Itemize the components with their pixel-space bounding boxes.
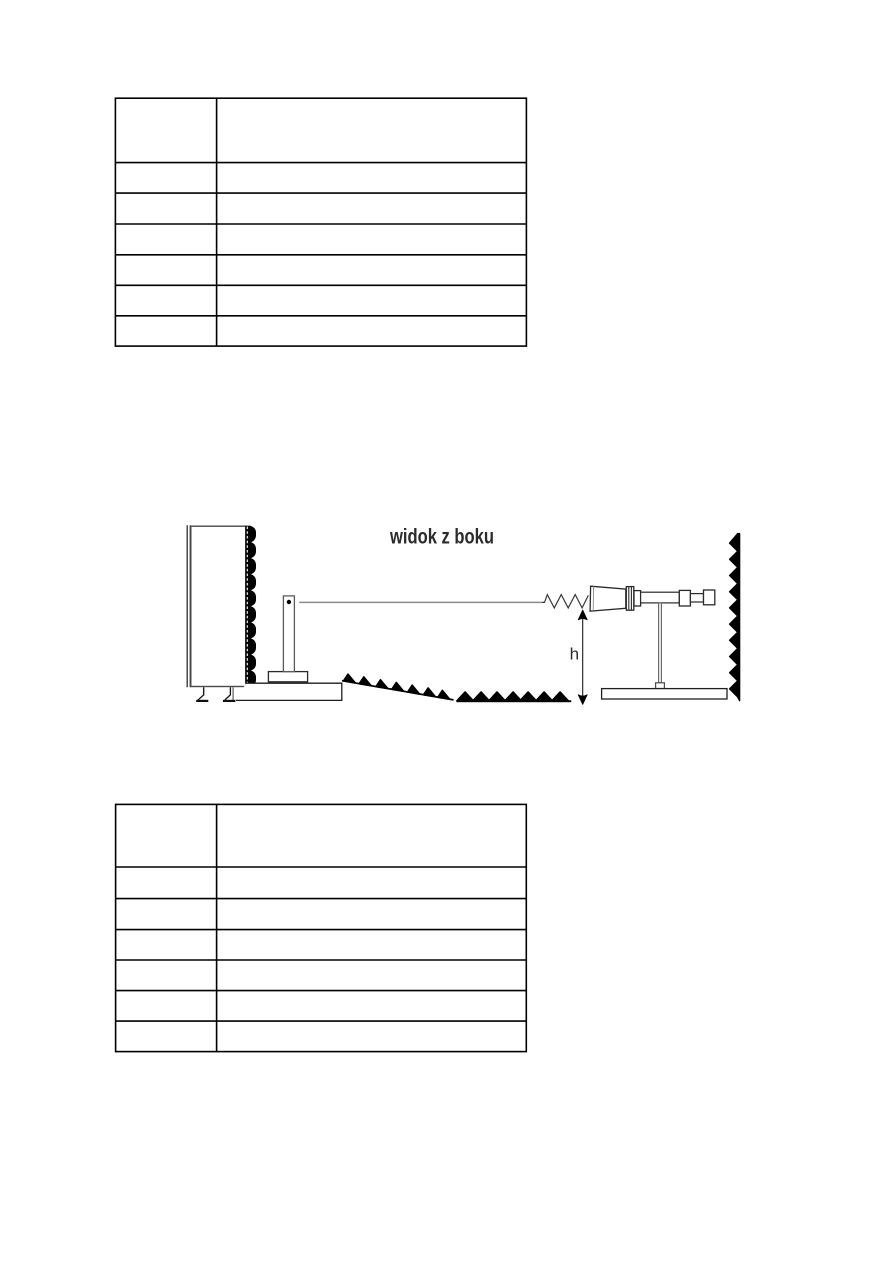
svg-text:widok z boku: widok z boku: [389, 526, 494, 549]
svg-text:h: h: [570, 645, 579, 664]
